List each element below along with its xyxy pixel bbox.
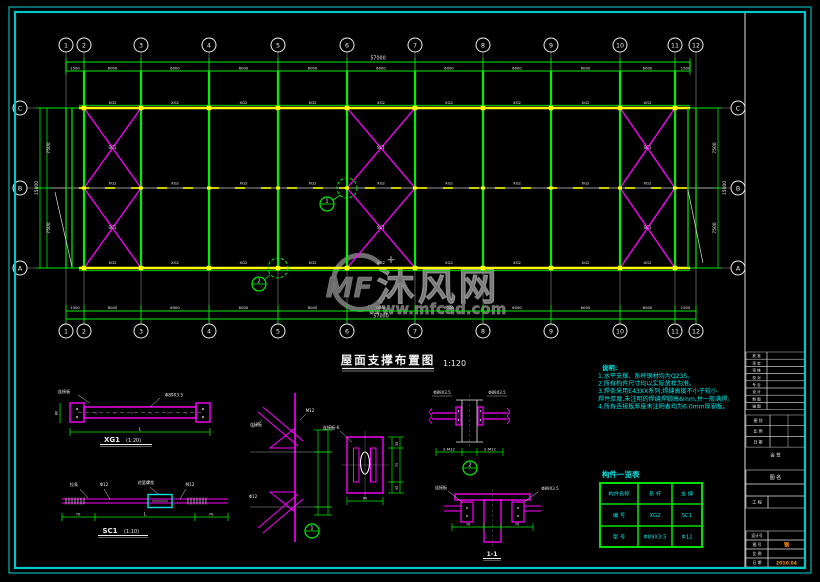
axis-letter: C bbox=[18, 105, 23, 112]
member-tag: XG2 bbox=[445, 260, 454, 265]
member-tag: XG2 bbox=[582, 100, 591, 105]
dim-bottom-bay: 6000 bbox=[170, 305, 180, 310]
callout-number: 2 bbox=[257, 279, 260, 285]
node-square bbox=[82, 266, 86, 270]
member-tag: XG2 bbox=[109, 100, 118, 105]
xg1-bolt bbox=[202, 408, 204, 410]
tsec-dim: 70 bbox=[515, 523, 519, 527]
member-tag: XG2 bbox=[109, 260, 118, 265]
dim-top-total: 57000 bbox=[370, 56, 385, 62]
xg1-bolt bbox=[76, 408, 78, 410]
dim-bottom-bay: 6000 bbox=[643, 305, 653, 310]
sc1-label: SC1 bbox=[102, 527, 117, 535]
axis-number: 9 bbox=[549, 42, 553, 49]
axis-number: 7 bbox=[413, 328, 417, 335]
notes-line: 焊件厚度,未注明的焊缝焊脚高6mm,并一般满焊。 bbox=[598, 395, 733, 403]
node-dash bbox=[549, 187, 553, 190]
xg1-dot bbox=[113, 412, 114, 413]
tsec-bolt bbox=[466, 515, 468, 517]
drawing-name-label: 图 名 bbox=[770, 474, 782, 481]
axis-number: 2 bbox=[82, 42, 86, 49]
sc1-annotation: 拉条 bbox=[70, 481, 79, 488]
axis-number: 6 bbox=[345, 42, 349, 49]
tie-bolt bbox=[458, 419, 460, 421]
dim-bottom-total: 57000 bbox=[373, 313, 388, 319]
member-tag: XG2 bbox=[377, 181, 386, 186]
bottom-label: 比 例 bbox=[753, 551, 762, 556]
node-dash bbox=[413, 187, 417, 190]
notes-line: 2.所有构件尺寸均以实际放样为准。 bbox=[598, 380, 695, 388]
dim-left: 7500 bbox=[46, 142, 52, 153]
axis-number: 9 bbox=[549, 328, 553, 335]
plate-dim: 70 bbox=[395, 463, 399, 467]
notes-line: 4.所有连接板厚度未注明者均为6.0mm厚钢板。 bbox=[598, 402, 729, 410]
xg1-height-dim: 80 bbox=[55, 410, 59, 415]
xg1-dot bbox=[185, 412, 186, 413]
axis-number: 11 bbox=[671, 328, 679, 335]
bottom-value: 2010.04 bbox=[776, 560, 797, 566]
dim-right: 7500 bbox=[712, 142, 718, 153]
callout-number: 1 bbox=[325, 199, 328, 205]
brace-tag: SC1 bbox=[644, 145, 652, 150]
plate-annotation: 连接板-6 bbox=[323, 424, 340, 431]
tie-bolt bbox=[480, 419, 482, 421]
axis-number: 8 bbox=[481, 328, 485, 335]
axis-number: 3 bbox=[139, 328, 143, 335]
node-annotation: M12 bbox=[306, 408, 315, 413]
table-cell: SC1 bbox=[682, 513, 692, 519]
table-cell: XG2 bbox=[649, 513, 660, 519]
node-square bbox=[139, 266, 143, 270]
mini-label: 日 期 bbox=[754, 439, 763, 444]
project-label: 工 程 bbox=[752, 499, 763, 506]
dim-top-bay: 6000 bbox=[581, 66, 591, 71]
node-square bbox=[82, 106, 86, 110]
xg1-bolt bbox=[76, 416, 78, 418]
xg1-annotation: Φ89X3.5 bbox=[165, 393, 183, 398]
xg1-dot bbox=[131, 412, 132, 413]
member-tag: XG2 bbox=[309, 181, 318, 186]
dim-right: 7500 bbox=[712, 222, 718, 233]
brace-tag: SC1 bbox=[109, 145, 117, 150]
xg1-dot bbox=[167, 412, 168, 413]
member-tag: XG2 bbox=[240, 260, 249, 265]
tie-annotation: Φ89X3.5 bbox=[433, 390, 451, 395]
dim-top-bay: 6000 bbox=[512, 66, 522, 71]
node-dash bbox=[345, 187, 349, 190]
node-square bbox=[276, 106, 280, 110]
member-tag: XG2 bbox=[513, 100, 522, 105]
member-tag: XG2 bbox=[171, 181, 180, 186]
axis-number: 4 bbox=[207, 42, 211, 49]
dim-left-total: 15000 bbox=[34, 181, 40, 195]
notes-line: 3.焊条采用E43XX系列,焊缝高度不小于较小 bbox=[598, 387, 717, 395]
axis-number: 12 bbox=[692, 328, 700, 335]
sc1-annotation: M12 bbox=[186, 482, 195, 487]
member-tag: XG2 bbox=[445, 181, 454, 186]
sign-label: 专 业 bbox=[752, 382, 761, 387]
notes-title: 说明: bbox=[602, 363, 617, 372]
member-tag: XG2 bbox=[240, 181, 249, 186]
table-cell: 支 撑 bbox=[681, 490, 694, 498]
axis-number: 4 bbox=[207, 328, 211, 335]
node-dash bbox=[82, 187, 86, 190]
table-cell: 编 号 bbox=[613, 511, 625, 519]
countersign-label: 会 签 bbox=[770, 452, 781, 459]
axis-number: 1 bbox=[64, 328, 68, 335]
plan-title: 屋面支撑布置图 bbox=[341, 353, 436, 367]
member-tag: XG2 bbox=[171, 100, 180, 105]
xg1-annotation: 连接板 bbox=[58, 388, 71, 395]
sc1-scale: (1:10) bbox=[124, 529, 139, 535]
member-tag: XG2 bbox=[513, 260, 522, 265]
bottom-label: 图 号 bbox=[753, 542, 762, 547]
node-square bbox=[481, 266, 485, 270]
axis-number: 7 bbox=[413, 42, 417, 49]
tie-bolt-label: 2-M12 bbox=[484, 447, 496, 452]
sign-label: 批 准 bbox=[752, 353, 761, 358]
dim-bottom-bay: 6000 bbox=[239, 305, 249, 310]
axis-letter: B bbox=[18, 185, 22, 192]
node-dash bbox=[207, 187, 211, 190]
member-tag: XG2 bbox=[582, 260, 591, 265]
brace-tag: SC1 bbox=[644, 225, 652, 230]
node-square bbox=[618, 106, 622, 110]
node-dash bbox=[618, 187, 622, 190]
node-square bbox=[276, 266, 280, 270]
axis-number: 12 bbox=[692, 42, 700, 49]
node-dash bbox=[481, 187, 485, 190]
member-tag: XG2 bbox=[644, 100, 653, 105]
mini-label: 图 别 bbox=[754, 418, 763, 423]
xg1-dot bbox=[149, 412, 150, 413]
sign-label: 审 定 bbox=[752, 360, 761, 365]
node-square bbox=[413, 266, 417, 270]
node-square bbox=[618, 266, 622, 270]
member-tag: XG2 bbox=[644, 181, 653, 186]
brace-tag: SC1 bbox=[109, 225, 117, 230]
node-square bbox=[345, 106, 349, 110]
dim-top-bay: 1500 bbox=[681, 66, 691, 71]
dim-bottom-bay: 6000 bbox=[581, 305, 591, 310]
dim-top-bay: 6000 bbox=[239, 66, 249, 71]
notes-line: 1.水平支撑、系杆钢材均为Q235。 bbox=[598, 372, 693, 380]
tsec-bolt bbox=[517, 507, 519, 509]
table-cell: Φ12 bbox=[682, 535, 693, 541]
table-cell: 系 杆 bbox=[649, 490, 662, 498]
dim-top-bay: 6000 bbox=[170, 66, 180, 71]
member-tag: XG2 bbox=[109, 181, 118, 186]
node-square bbox=[673, 266, 677, 270]
member-tag: XG2 bbox=[377, 100, 386, 105]
member-tag: XG2 bbox=[513, 181, 522, 186]
dim-bottom-bay: 6000 bbox=[512, 305, 522, 310]
callout-number: 1 bbox=[310, 526, 313, 532]
tsec-annotation: Φ89X3.5 bbox=[541, 486, 559, 491]
dim-top-bay: 6000 bbox=[643, 66, 653, 71]
axis-number: 10 bbox=[616, 328, 624, 335]
member-tag: XG2 bbox=[644, 260, 653, 265]
tie-bolt bbox=[458, 410, 460, 412]
dim-top-bay: 6000 bbox=[308, 66, 318, 71]
node-dash bbox=[276, 187, 280, 190]
axis-number: 5 bbox=[276, 42, 280, 49]
axis-number: 6 bbox=[345, 328, 349, 335]
xg1-scale: (1:20) bbox=[126, 438, 141, 444]
node-square bbox=[345, 266, 349, 270]
dim-top-bay: 6000 bbox=[376, 66, 386, 71]
table-cell: 型 号 bbox=[613, 533, 625, 541]
tie-annotation: Φ89X3.5 bbox=[488, 390, 506, 395]
brace-tag: SC1 bbox=[377, 225, 385, 230]
cad-canvas[interactable]: MF + 沐风网 www.mfcad.com 15006000600060006… bbox=[0, 0, 820, 582]
axis-number: 2 bbox=[82, 328, 86, 335]
tie-bolt-label: 2-M12 bbox=[443, 447, 455, 452]
sc1-dim: 70 bbox=[76, 512, 81, 517]
member-tag: XG2 bbox=[582, 181, 591, 186]
tie-bolt bbox=[480, 410, 482, 412]
xg1-bolt bbox=[202, 416, 204, 418]
axis-letter: C bbox=[736, 105, 741, 112]
mini-label: 比 例 bbox=[754, 429, 763, 434]
member-tag: XG2 bbox=[445, 100, 454, 105]
node-square bbox=[673, 106, 677, 110]
axis-number: 5 bbox=[276, 328, 280, 335]
sign-label: 制 图 bbox=[752, 396, 761, 401]
dim-bottom-bay: 1500 bbox=[70, 305, 80, 310]
sign-label: 设 计 bbox=[752, 389, 761, 394]
dim-bottom-bay: 6000 bbox=[308, 305, 318, 310]
table-cell: Φ89X3.5 bbox=[644, 535, 667, 541]
axis-number: 11 bbox=[671, 42, 679, 49]
node-square bbox=[413, 106, 417, 110]
plate-dim: 35 bbox=[395, 442, 399, 446]
tsec-annotation: 连接板 bbox=[435, 484, 447, 490]
node-square bbox=[139, 106, 143, 110]
member-tag: XG2 bbox=[240, 100, 249, 105]
node-square bbox=[207, 106, 211, 110]
tsec-bolt bbox=[466, 507, 468, 509]
dim-bottom-bay: 6000 bbox=[444, 305, 454, 310]
sc1-annotation: 花篮螺栓 bbox=[138, 479, 156, 486]
callout-number: 2 bbox=[468, 463, 471, 469]
sc1-annotation: Φ12 bbox=[100, 482, 109, 487]
plan-scale: 1:120 bbox=[443, 359, 466, 368]
sign-label: 审 核 bbox=[752, 368, 761, 373]
axis-letter: A bbox=[736, 265, 741, 272]
node-annotation: 连接板 bbox=[250, 421, 262, 427]
dim-top-bay: 1500 bbox=[70, 66, 80, 71]
member-tag: XG2 bbox=[309, 260, 318, 265]
xg1-dot bbox=[95, 412, 96, 413]
member-tag: XG2 bbox=[377, 260, 386, 265]
sc1-dim: 70 bbox=[209, 512, 214, 517]
dim-top-bay: 6000 bbox=[108, 66, 118, 71]
xg1-label: XG1 bbox=[104, 436, 120, 444]
bottom-label: 日 期 bbox=[753, 560, 762, 565]
dim-top-bay: 6000 bbox=[444, 66, 454, 71]
node-square bbox=[481, 106, 485, 110]
node-annotation: Φ12 bbox=[249, 494, 258, 499]
axis-number: 3 bbox=[139, 42, 143, 49]
axis-number: 8 bbox=[481, 42, 485, 49]
dim-bottom-bay: 6000 bbox=[376, 305, 386, 310]
component-table-title: 构件一览表 bbox=[602, 469, 640, 479]
node-square bbox=[549, 106, 553, 110]
dim-right-total: 15000 bbox=[722, 181, 728, 195]
tsec-bolt bbox=[517, 515, 519, 517]
axis-letter: A bbox=[18, 265, 23, 272]
axis-number: 10 bbox=[616, 42, 624, 49]
tsec-label: 1-1 bbox=[487, 551, 498, 558]
bottom-value: 钢 bbox=[784, 541, 789, 548]
node-dash bbox=[673, 187, 677, 190]
axis-letter: B bbox=[736, 185, 740, 192]
axis-number: 1 bbox=[64, 42, 68, 49]
plate-dim: 35 bbox=[395, 486, 399, 490]
table-cell: 构件名称 bbox=[608, 490, 630, 498]
sign-label: 描 图 bbox=[752, 404, 761, 409]
tsec-dim: 70 bbox=[466, 523, 470, 527]
watermark-logo: MF bbox=[326, 271, 373, 304]
dim-bottom-bay: 1500 bbox=[681, 305, 691, 310]
brace-tag: SC1 bbox=[377, 145, 385, 150]
bottom-label: 设计号 bbox=[751, 533, 763, 538]
member-tag: XG2 bbox=[171, 260, 180, 265]
member-tag: XG2 bbox=[309, 100, 318, 105]
dim-bottom-bay: 6000 bbox=[108, 305, 118, 310]
dim-left: 7500 bbox=[46, 222, 52, 233]
node-square bbox=[207, 266, 211, 270]
node-dash bbox=[139, 187, 143, 190]
node-square bbox=[549, 266, 553, 270]
sign-label: 校 对 bbox=[752, 375, 761, 380]
plate-dim: 60 bbox=[363, 497, 367, 501]
